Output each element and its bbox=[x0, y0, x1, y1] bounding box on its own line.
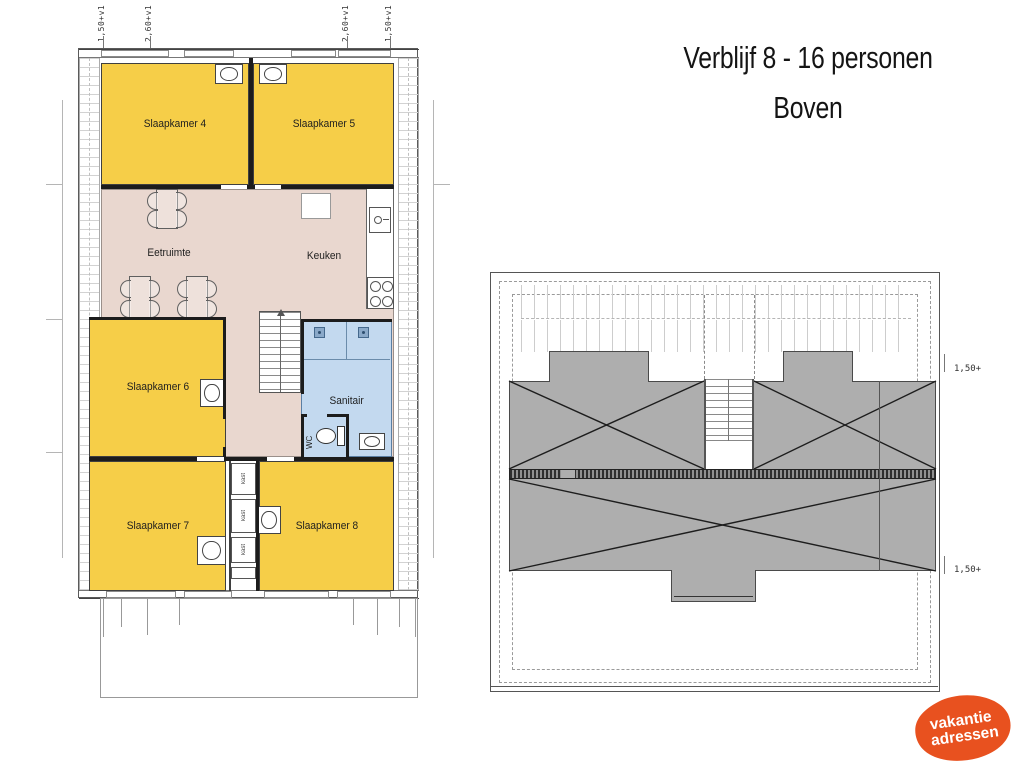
dimension-label: 1,50+v1 bbox=[97, 2, 106, 42]
room-label: Slaapkamer 7 bbox=[126, 520, 188, 532]
washbasin-icon bbox=[359, 433, 385, 450]
wall-segment bbox=[301, 319, 392, 322]
wall-segment bbox=[256, 461, 259, 591]
chair-icon bbox=[147, 192, 158, 210]
window-marker bbox=[101, 50, 169, 57]
washbasin-icon bbox=[215, 64, 243, 84]
page-title: Verblijf 8 - 16 personen Boven bbox=[610, 33, 1006, 137]
support-line bbox=[103, 599, 104, 637]
support-line bbox=[415, 599, 416, 637]
chair-icon bbox=[177, 280, 188, 298]
wall-segment bbox=[223, 447, 226, 457]
support-line bbox=[353, 599, 354, 625]
washbasin-icon bbox=[200, 379, 224, 407]
room-label: Slaapkamer 4 bbox=[144, 118, 206, 130]
level-tick bbox=[46, 452, 62, 453]
window-marker bbox=[106, 591, 176, 598]
dimension-tick bbox=[103, 36, 104, 48]
stairs-arrow bbox=[277, 309, 285, 316]
stairs-icon bbox=[259, 311, 301, 393]
closet-label: kast bbox=[241, 473, 247, 484]
wall-segment bbox=[346, 414, 349, 457]
burner-icon bbox=[382, 281, 393, 292]
toilet-icon bbox=[316, 428, 336, 444]
room-label: Slaapkamer 5 bbox=[292, 118, 354, 130]
fridge-icon bbox=[301, 193, 331, 219]
wall-segment bbox=[301, 414, 304, 457]
title-line-2: Boven bbox=[650, 83, 967, 133]
wall-segment bbox=[89, 317, 226, 320]
stairs-center-rail bbox=[728, 379, 729, 441]
rafter-line bbox=[879, 381, 880, 571]
roof-edge-line bbox=[491, 686, 938, 687]
chair-icon bbox=[177, 300, 188, 318]
vakantieadressen-logo: vakantie adressen bbox=[912, 692, 1014, 764]
window-marker bbox=[338, 50, 391, 57]
room-label: Sanitair bbox=[329, 395, 363, 407]
roof-overhang-hatch-right bbox=[398, 58, 419, 590]
sink-basin bbox=[374, 216, 382, 224]
terrace-outline bbox=[100, 598, 418, 698]
closet-label: kast bbox=[241, 510, 247, 521]
wall-segment bbox=[301, 319, 304, 394]
upper-floor-plan: Eetruimte Keuken bbox=[78, 48, 418, 598]
burner-icon bbox=[382, 296, 393, 307]
burner-icon bbox=[370, 296, 381, 307]
dimension-tick bbox=[150, 36, 151, 48]
room-label: Slaapkamer 6 bbox=[126, 381, 188, 393]
room-label-wc: WC bbox=[305, 423, 314, 449]
washbasin-icon bbox=[257, 506, 281, 534]
sink-faucet bbox=[383, 219, 389, 220]
floorplan-page: Verblijf 8 - 16 personen Boven 1,50+v1 2… bbox=[0, 0, 1024, 768]
dimension-label: 1,50+ bbox=[954, 565, 981, 575]
dimension-label: 1,50+ bbox=[954, 364, 981, 374]
shower-cubicles bbox=[303, 320, 390, 360]
sink-icon bbox=[369, 207, 391, 233]
chair-icon bbox=[147, 210, 158, 228]
level-tick bbox=[434, 184, 450, 185]
stairs-center-rail bbox=[280, 312, 281, 392]
support-line bbox=[377, 599, 378, 635]
window-marker bbox=[291, 50, 336, 57]
wall-segment bbox=[223, 317, 226, 419]
washbasin-icon bbox=[197, 536, 226, 565]
closet-box bbox=[231, 567, 256, 579]
dimension-label: 2,60+v1 bbox=[341, 2, 350, 42]
dining-table-icon bbox=[129, 276, 151, 320]
dimension-label: 2,60+v1 bbox=[144, 2, 153, 42]
dimension-tick bbox=[944, 354, 945, 372]
dimension-tick bbox=[347, 36, 348, 48]
ridge-beam-gap bbox=[561, 470, 575, 478]
dimension-label: 1,50+v1 bbox=[384, 2, 393, 42]
stairs-icon bbox=[706, 379, 752, 441]
burner-icon bbox=[370, 281, 381, 292]
room-label-eetruimte: Eetruimte bbox=[123, 247, 215, 259]
window-marker bbox=[184, 591, 232, 598]
wall-segment bbox=[89, 457, 197, 461]
washbasin-icon bbox=[259, 64, 287, 84]
wall-segment bbox=[303, 414, 307, 417]
level-tick bbox=[46, 184, 62, 185]
wall-segment bbox=[249, 58, 253, 189]
support-line bbox=[399, 599, 400, 627]
wall-segment bbox=[229, 461, 231, 591]
gutter-line-left bbox=[62, 100, 63, 558]
chair-icon bbox=[120, 280, 131, 298]
dimension-tick bbox=[944, 556, 945, 574]
roof-plan bbox=[490, 272, 940, 692]
wall-segment bbox=[294, 457, 394, 461]
room-label: Slaapkamer 8 bbox=[295, 520, 357, 532]
level-tick bbox=[46, 319, 62, 320]
wall-segment bbox=[281, 185, 394, 189]
shower-icon bbox=[358, 327, 369, 338]
title-line-1: Verblijf 8 - 16 personen bbox=[650, 33, 967, 83]
closet-box: kast bbox=[231, 499, 256, 533]
room-slaapkamer-7: Slaapkamer 7 bbox=[89, 461, 226, 591]
cross-brace-icon bbox=[491, 273, 941, 693]
dimension-tick bbox=[390, 36, 391, 48]
room-label-keuken: Keuken bbox=[283, 250, 366, 262]
window-marker bbox=[264, 591, 329, 598]
toilet-tank bbox=[337, 426, 345, 446]
gutter-line-right bbox=[433, 100, 434, 558]
stair-shaft bbox=[704, 379, 754, 469]
window-marker bbox=[337, 591, 391, 598]
chair-icon bbox=[120, 300, 131, 318]
closet-label: kast bbox=[241, 544, 247, 555]
stove-icon bbox=[367, 277, 394, 309]
closet-box: kast bbox=[231, 463, 256, 495]
support-line bbox=[147, 599, 148, 635]
dining-table-icon bbox=[186, 276, 208, 320]
dining-table-icon bbox=[156, 189, 178, 229]
window-marker bbox=[184, 50, 234, 57]
shower-divider bbox=[346, 320, 347, 360]
support-line bbox=[121, 599, 122, 627]
closet-box: kast bbox=[231, 537, 256, 563]
wall-segment bbox=[101, 185, 221, 189]
shower-icon bbox=[314, 327, 325, 338]
support-line bbox=[179, 599, 180, 625]
